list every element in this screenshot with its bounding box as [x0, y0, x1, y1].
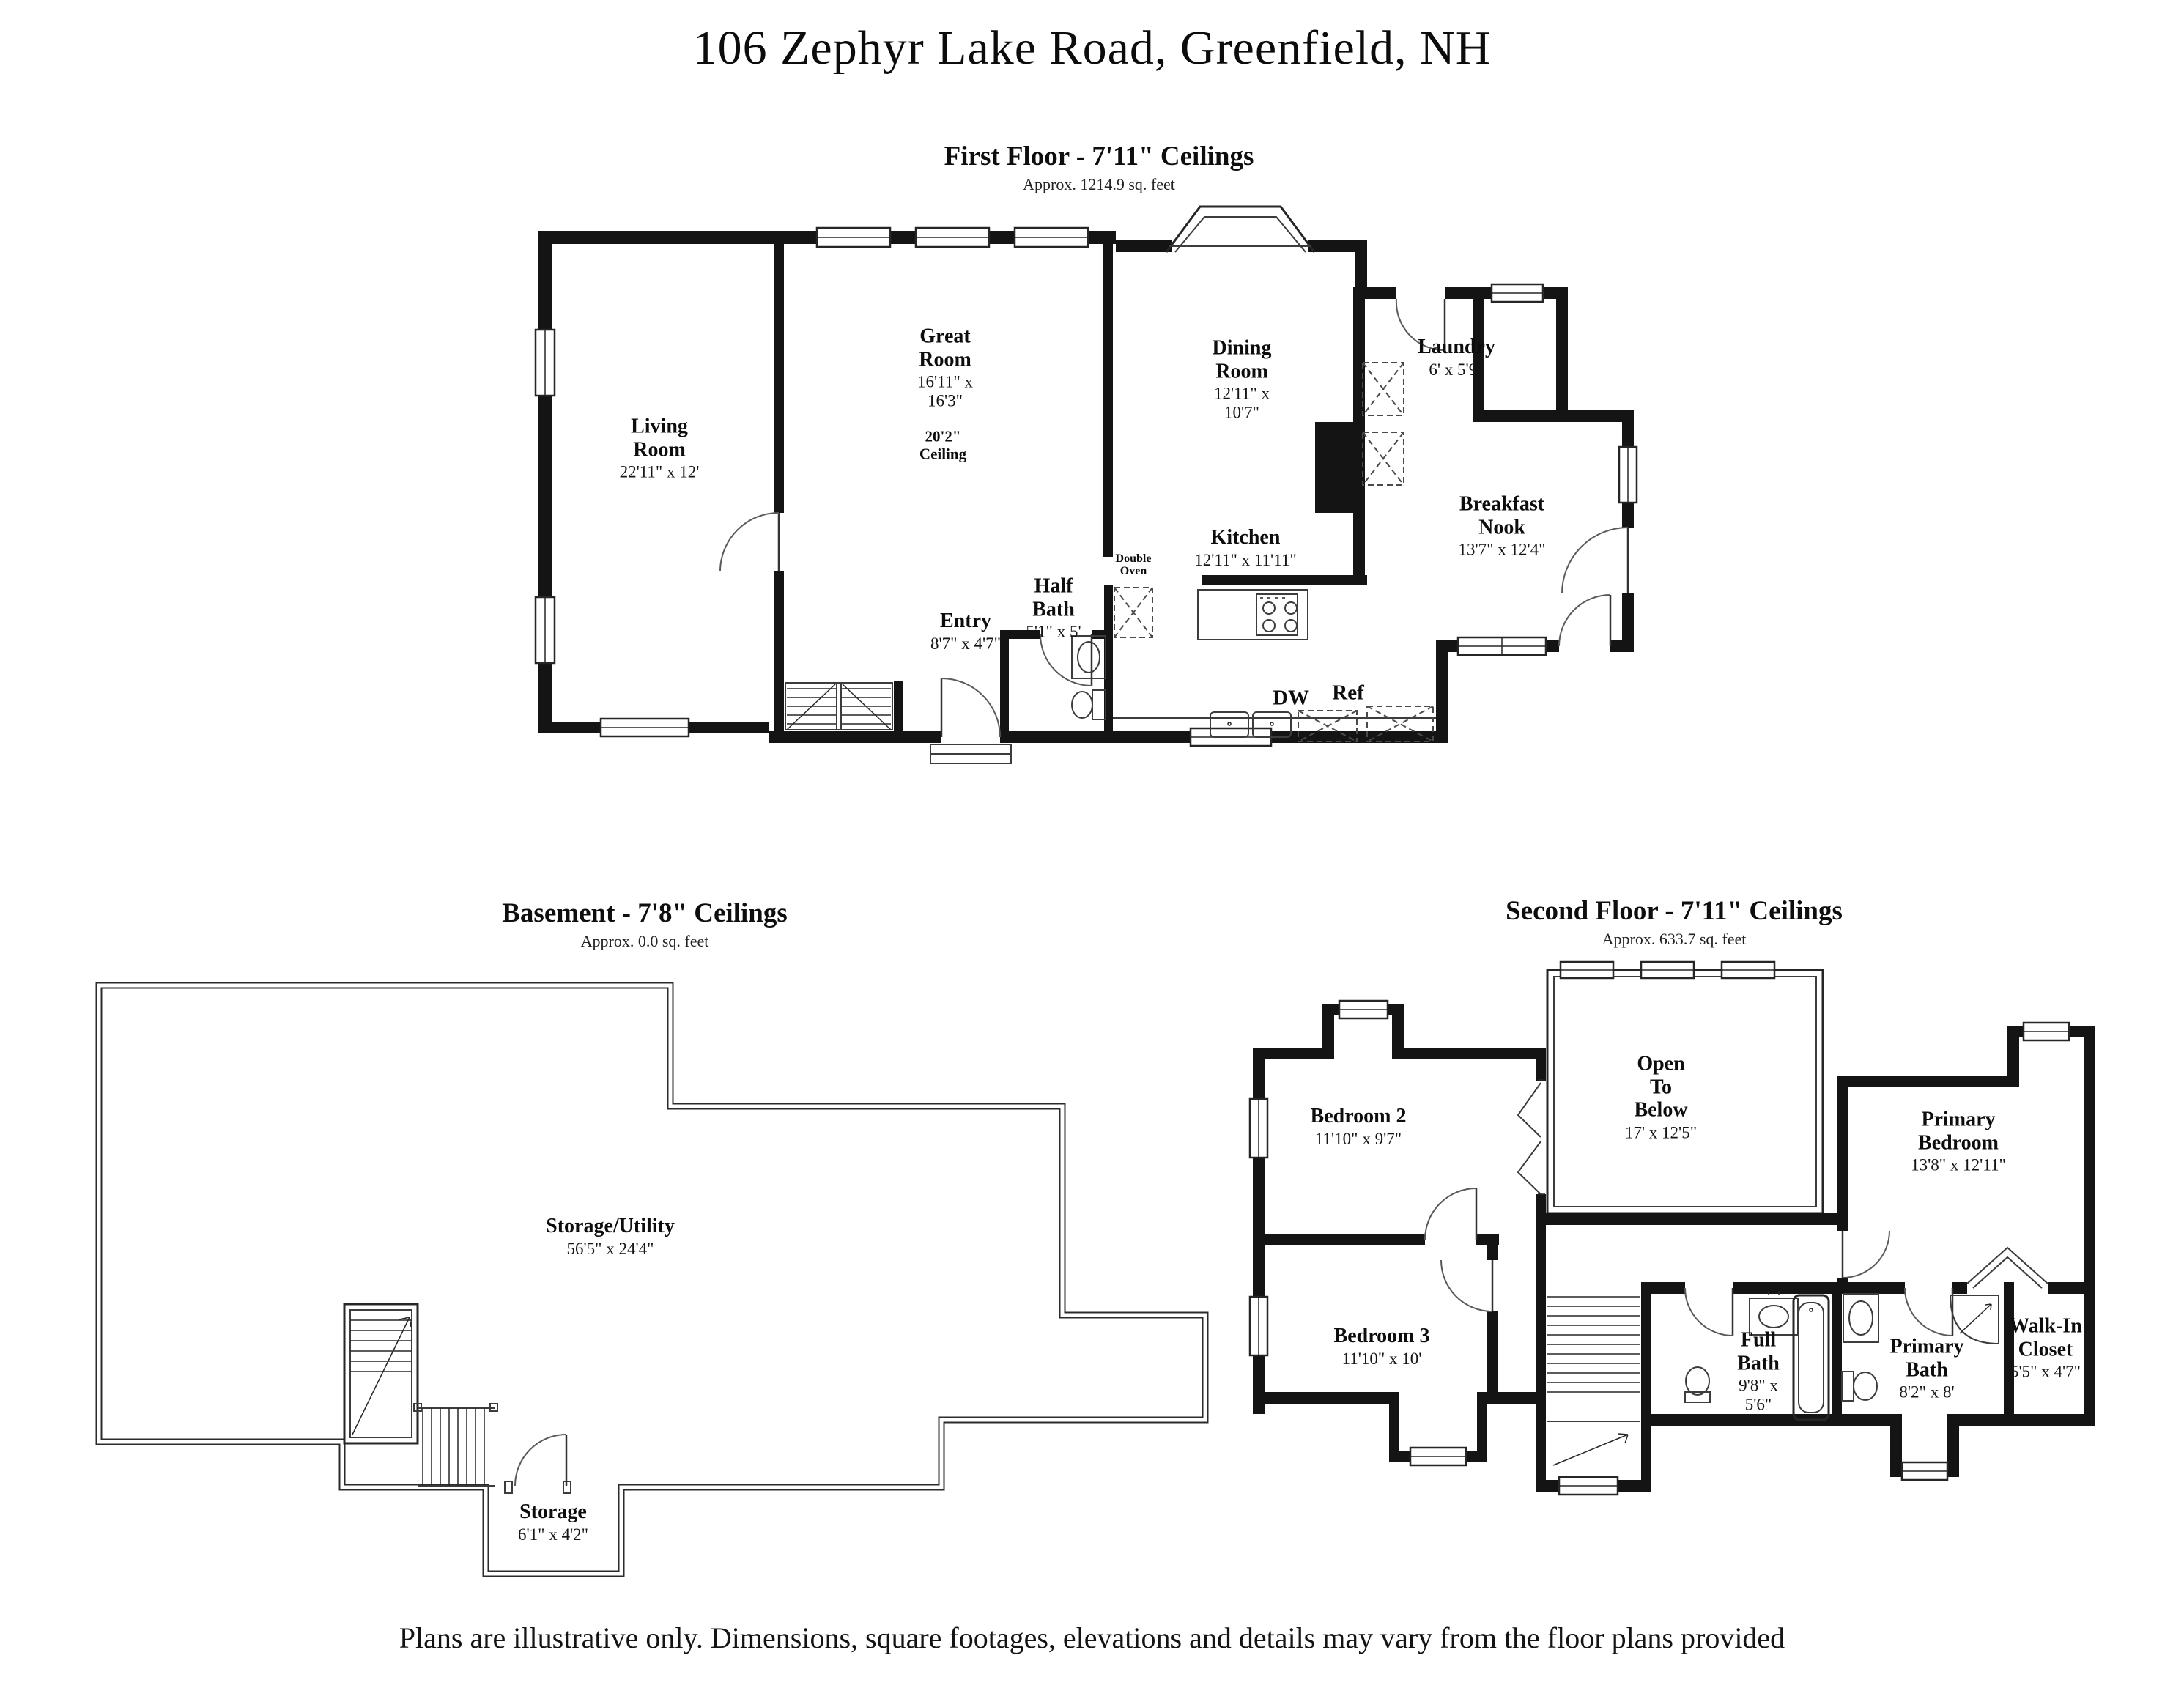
basement-area: Approx. 0.0 sq. feet — [84, 932, 1205, 951]
room-label-walk-in-closet: Walk-In Closet 5'5" x 4'7" — [1998, 1314, 2093, 1381]
room-label-bedroom-2: Bedroom 2 11'10" x 9'7" — [1289, 1105, 1428, 1149]
toilet-icon — [1842, 1371, 1877, 1401]
room-label-great-room: Great Room 16'11" x 16'3" — [905, 325, 985, 410]
room-label-great-ceiling-note: 20'2" Ceiling — [903, 428, 983, 462]
closet-doors-icon — [1967, 1248, 2048, 1288]
stairs-icon — [1547, 1297, 1640, 1465]
room-label-ref: Ref — [1332, 681, 1363, 706]
door-icon — [1425, 1188, 1952, 1336]
window-icon — [536, 228, 1637, 746]
toilet-icon — [1685, 1367, 1710, 1402]
basement-plan: Storage/Utility 56'5" x 24'4" Storage 6'… — [84, 960, 1227, 1590]
room-label-primary-bedroom: Primary Bedroom 13'8" x 12'11" — [1900, 1108, 2017, 1174]
floor-plan-sheet: 106 Zephyr Lake Road, Greenfield, NH Fir… — [0, 0, 2184, 1688]
double-oven-icon — [1114, 588, 1152, 637]
basement-drawing — [84, 960, 1227, 1590]
stairs-icon — [344, 1304, 497, 1486]
room-label-storage-utility: Storage/Utility 56'5" x 24'4" — [552, 1215, 669, 1259]
room-label-entry: Entry 8'7" x 4'7" — [907, 610, 1024, 654]
room-label-basement-storage: Storage 6'1" x 4'2" — [487, 1500, 619, 1544]
second-floor-title: Second Floor - 7'11" Ceilings — [1256, 895, 2092, 927]
toilet-icon — [1072, 690, 1106, 719]
stairs-icon — [785, 683, 892, 730]
disclaimer-text: Plans are illustrative only. Dimensions,… — [0, 1621, 2184, 1655]
room-label-bedroom-3: Bedroom 3 11'10" x 10' — [1312, 1325, 1451, 1369]
basement-heading: Basement - 7'8" Ceilings Approx. 0.0 sq.… — [84, 897, 1205, 951]
room-label-kitchen: Kitchen 12'11" x 11'11" — [1165, 526, 1326, 570]
second-floor-area: Approx. 633.7 sq. feet — [1256, 930, 2092, 949]
room-label-living-room: Living Room 22'11" x 12' — [604, 415, 714, 481]
first-floor-title: First Floor - 7'11" Ceilings — [528, 141, 1670, 172]
second-floor-drawing — [1245, 952, 2125, 1524]
room-label-laundry: Laundry 6' x 5'9" — [1394, 336, 1519, 380]
room-label-full-bath: Full Bath 9'8" x 5'6" — [1729, 1328, 1788, 1414]
first-floor-plan: Living Room 22'11" x 12' Great Room 16'1… — [528, 176, 1670, 769]
second-floor-plan: Bedroom 2 11'10" x 9'7" Open To Below 17… — [1245, 952, 2125, 1524]
room-label-dining-room: Dining Room 12'11" x 10'7" — [1202, 336, 1282, 422]
basement-title: Basement - 7'8" Ceilings — [84, 897, 1205, 929]
room-label-primary-bath: Primary Bath 8'2" x 8' — [1883, 1335, 1971, 1402]
bathroom-sink-icon — [1072, 636, 1106, 678]
kitchen-island-icon — [1198, 590, 1308, 640]
bifold-closet-icon — [1518, 1080, 1545, 1194]
room-label-dw: DW — [1273, 686, 1309, 711]
bathroom-sink-icon — [1843, 1294, 1878, 1342]
room-label-double-oven: Double Oven — [1110, 553, 1157, 578]
bathtub-icon — [1794, 1295, 1829, 1420]
room-label-breakfast-nook: Breakfast Nook 13'7" x 12'4" — [1436, 492, 1568, 559]
door-icon — [505, 1435, 571, 1496]
room-label-open-to-below: Open To Below 17' x 12'5" — [1624, 1053, 1698, 1143]
washer-dryer-icon — [1363, 363, 1404, 485]
second-floor-heading: Second Floor - 7'11" Ceilings Approx. 63… — [1256, 895, 2092, 949]
room-label-half-bath: Half Bath 5'1" x 5' — [1024, 574, 1083, 641]
page-title: 106 Zephyr Lake Road, Greenfield, NH — [0, 21, 2184, 76]
